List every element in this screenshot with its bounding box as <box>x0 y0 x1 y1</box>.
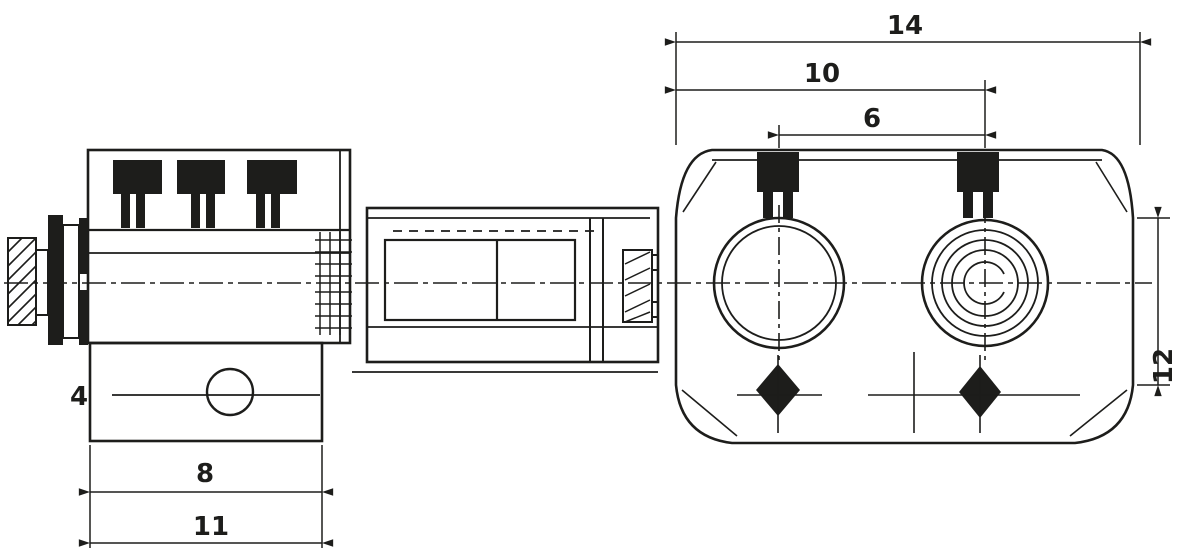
chamfer-line-br <box>1070 390 1127 436</box>
dim-label-port: 4 <box>70 382 88 412</box>
terminal-tower-right <box>957 152 999 218</box>
dim-label-overall-width: 14 <box>887 11 923 41</box>
spool-bore <box>385 240 575 320</box>
front-outline <box>676 150 1133 443</box>
terminal-slot <box>247 160 297 228</box>
chamfer-line-bl <box>682 390 737 436</box>
knurl-hatch <box>8 238 36 325</box>
dim-label-side-overall: 11 <box>193 512 229 542</box>
front-view <box>676 150 1133 443</box>
armature-tube <box>63 225 79 338</box>
terminal-slot <box>113 160 162 228</box>
side-view <box>8 150 350 441</box>
flange-bar <box>48 215 63 345</box>
end-cap-knurl <box>625 252 650 322</box>
diamond-port-right <box>868 352 1080 433</box>
terminal-tower-left <box>757 152 799 218</box>
side-port-circle <box>207 369 253 415</box>
pole-bar-bottom <box>79 290 88 345</box>
manual-override-knob <box>8 238 36 325</box>
dim-label-side-height: 12 <box>1149 348 1179 384</box>
section-view <box>315 208 658 372</box>
terminal-slots <box>113 160 297 228</box>
drawing-canvas: 8 11 4 <box>0 0 1194 552</box>
dim-label-terminal-pitch: 6 <box>863 104 881 134</box>
end-cap <box>623 250 658 322</box>
dim-label-mid-width: 10 <box>804 59 840 89</box>
technical-drawing: 8 11 4 <box>0 0 1194 552</box>
dim-label-side-body: 8 <box>196 459 214 489</box>
diamond-port-left <box>737 355 822 433</box>
terminal-slot <box>177 160 225 228</box>
pole-bar-top <box>79 218 88 274</box>
